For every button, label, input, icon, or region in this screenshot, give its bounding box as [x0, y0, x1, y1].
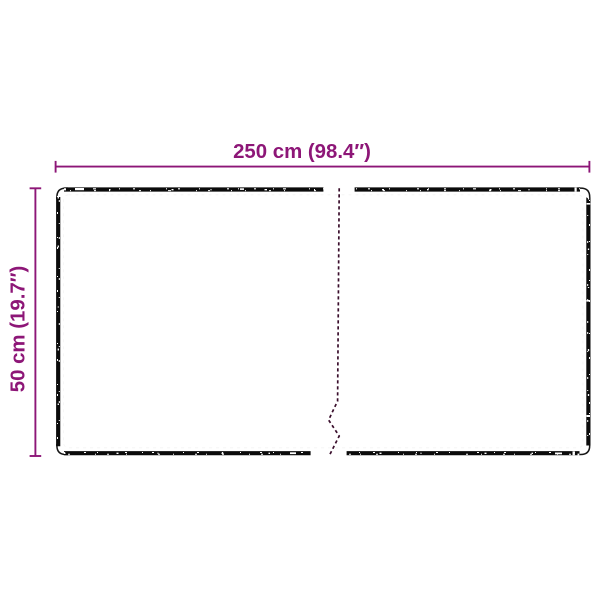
- svg-text:250 cm (98.4″): 250 cm (98.4″): [233, 141, 371, 163]
- svg-text:50 cm (19.7″): 50 cm (19.7″): [7, 266, 29, 393]
